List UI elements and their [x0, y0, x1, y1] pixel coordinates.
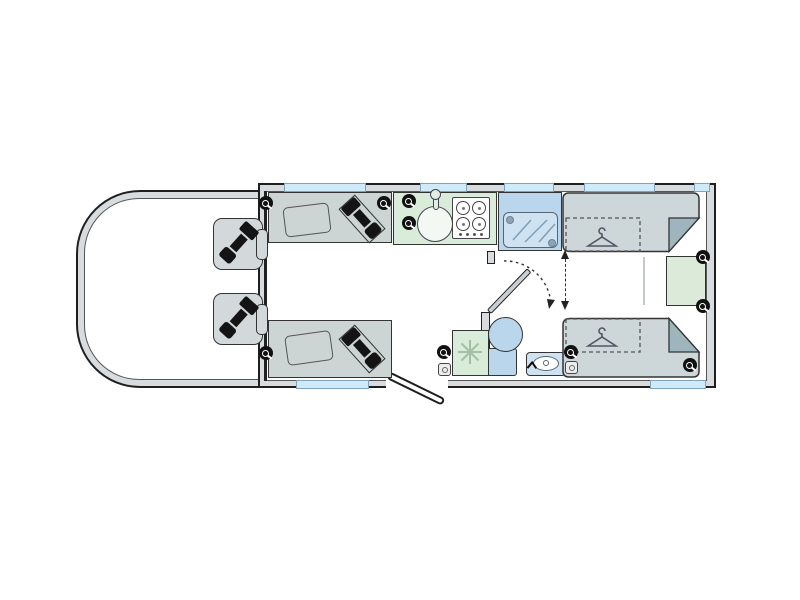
speaker-icon [259, 346, 273, 360]
socket-icon [565, 361, 578, 374]
shower-head-icon [506, 216, 514, 224]
speaker-icon [696, 299, 710, 313]
kitchen-sink [417, 206, 453, 242]
hob-burner [456, 201, 470, 215]
speaker-icon [683, 358, 697, 372]
window-top-rear-corner [694, 183, 710, 192]
door-swing-arc [494, 252, 558, 312]
toilet [488, 317, 523, 352]
window-top-kitchen [420, 183, 467, 192]
window-top-lounge [284, 183, 366, 192]
hob-burner [472, 201, 486, 215]
speaker-icon [259, 196, 273, 210]
speaker-icon [437, 345, 451, 359]
sofa-cushion [282, 202, 331, 237]
hob-burner [472, 217, 486, 231]
arrow-down-icon [561, 301, 569, 310]
snowflake-icon [456, 338, 484, 366]
speaker-icon [402, 194, 416, 208]
hob [452, 197, 490, 239]
washbasin-drain [543, 360, 549, 366]
speaker-icon [402, 216, 416, 230]
speaker-icon [564, 345, 578, 359]
window-top-bedroom [584, 183, 655, 192]
bed-rear-bottom [562, 316, 702, 378]
toilet-pedestal [487, 348, 517, 376]
shower-drain-icon [548, 239, 556, 247]
window-bottom-lounge [296, 380, 369, 389]
bed-slide-indicator [565, 259, 566, 301]
window-top-shower [504, 183, 554, 192]
kitchen-tap-head [430, 189, 441, 200]
window-bottom-bedroom [650, 380, 706, 389]
sofa-cushion [284, 330, 334, 366]
bed-step-edge [643, 257, 645, 305]
hob-knob [466, 233, 469, 236]
floorplan-canvas [0, 0, 800, 600]
arrow-up-icon [561, 250, 569, 259]
hob-knob [480, 233, 483, 236]
speaker-icon [696, 250, 710, 264]
blanket-fold [669, 218, 699, 252]
speaker-icon [377, 196, 391, 210]
hob-knob [473, 233, 476, 236]
bed-rear-top [562, 192, 702, 254]
blanket-fold [669, 319, 699, 353]
socket-icon [438, 363, 451, 376]
hob-knob [459, 233, 462, 236]
hob-burner [456, 217, 470, 231]
